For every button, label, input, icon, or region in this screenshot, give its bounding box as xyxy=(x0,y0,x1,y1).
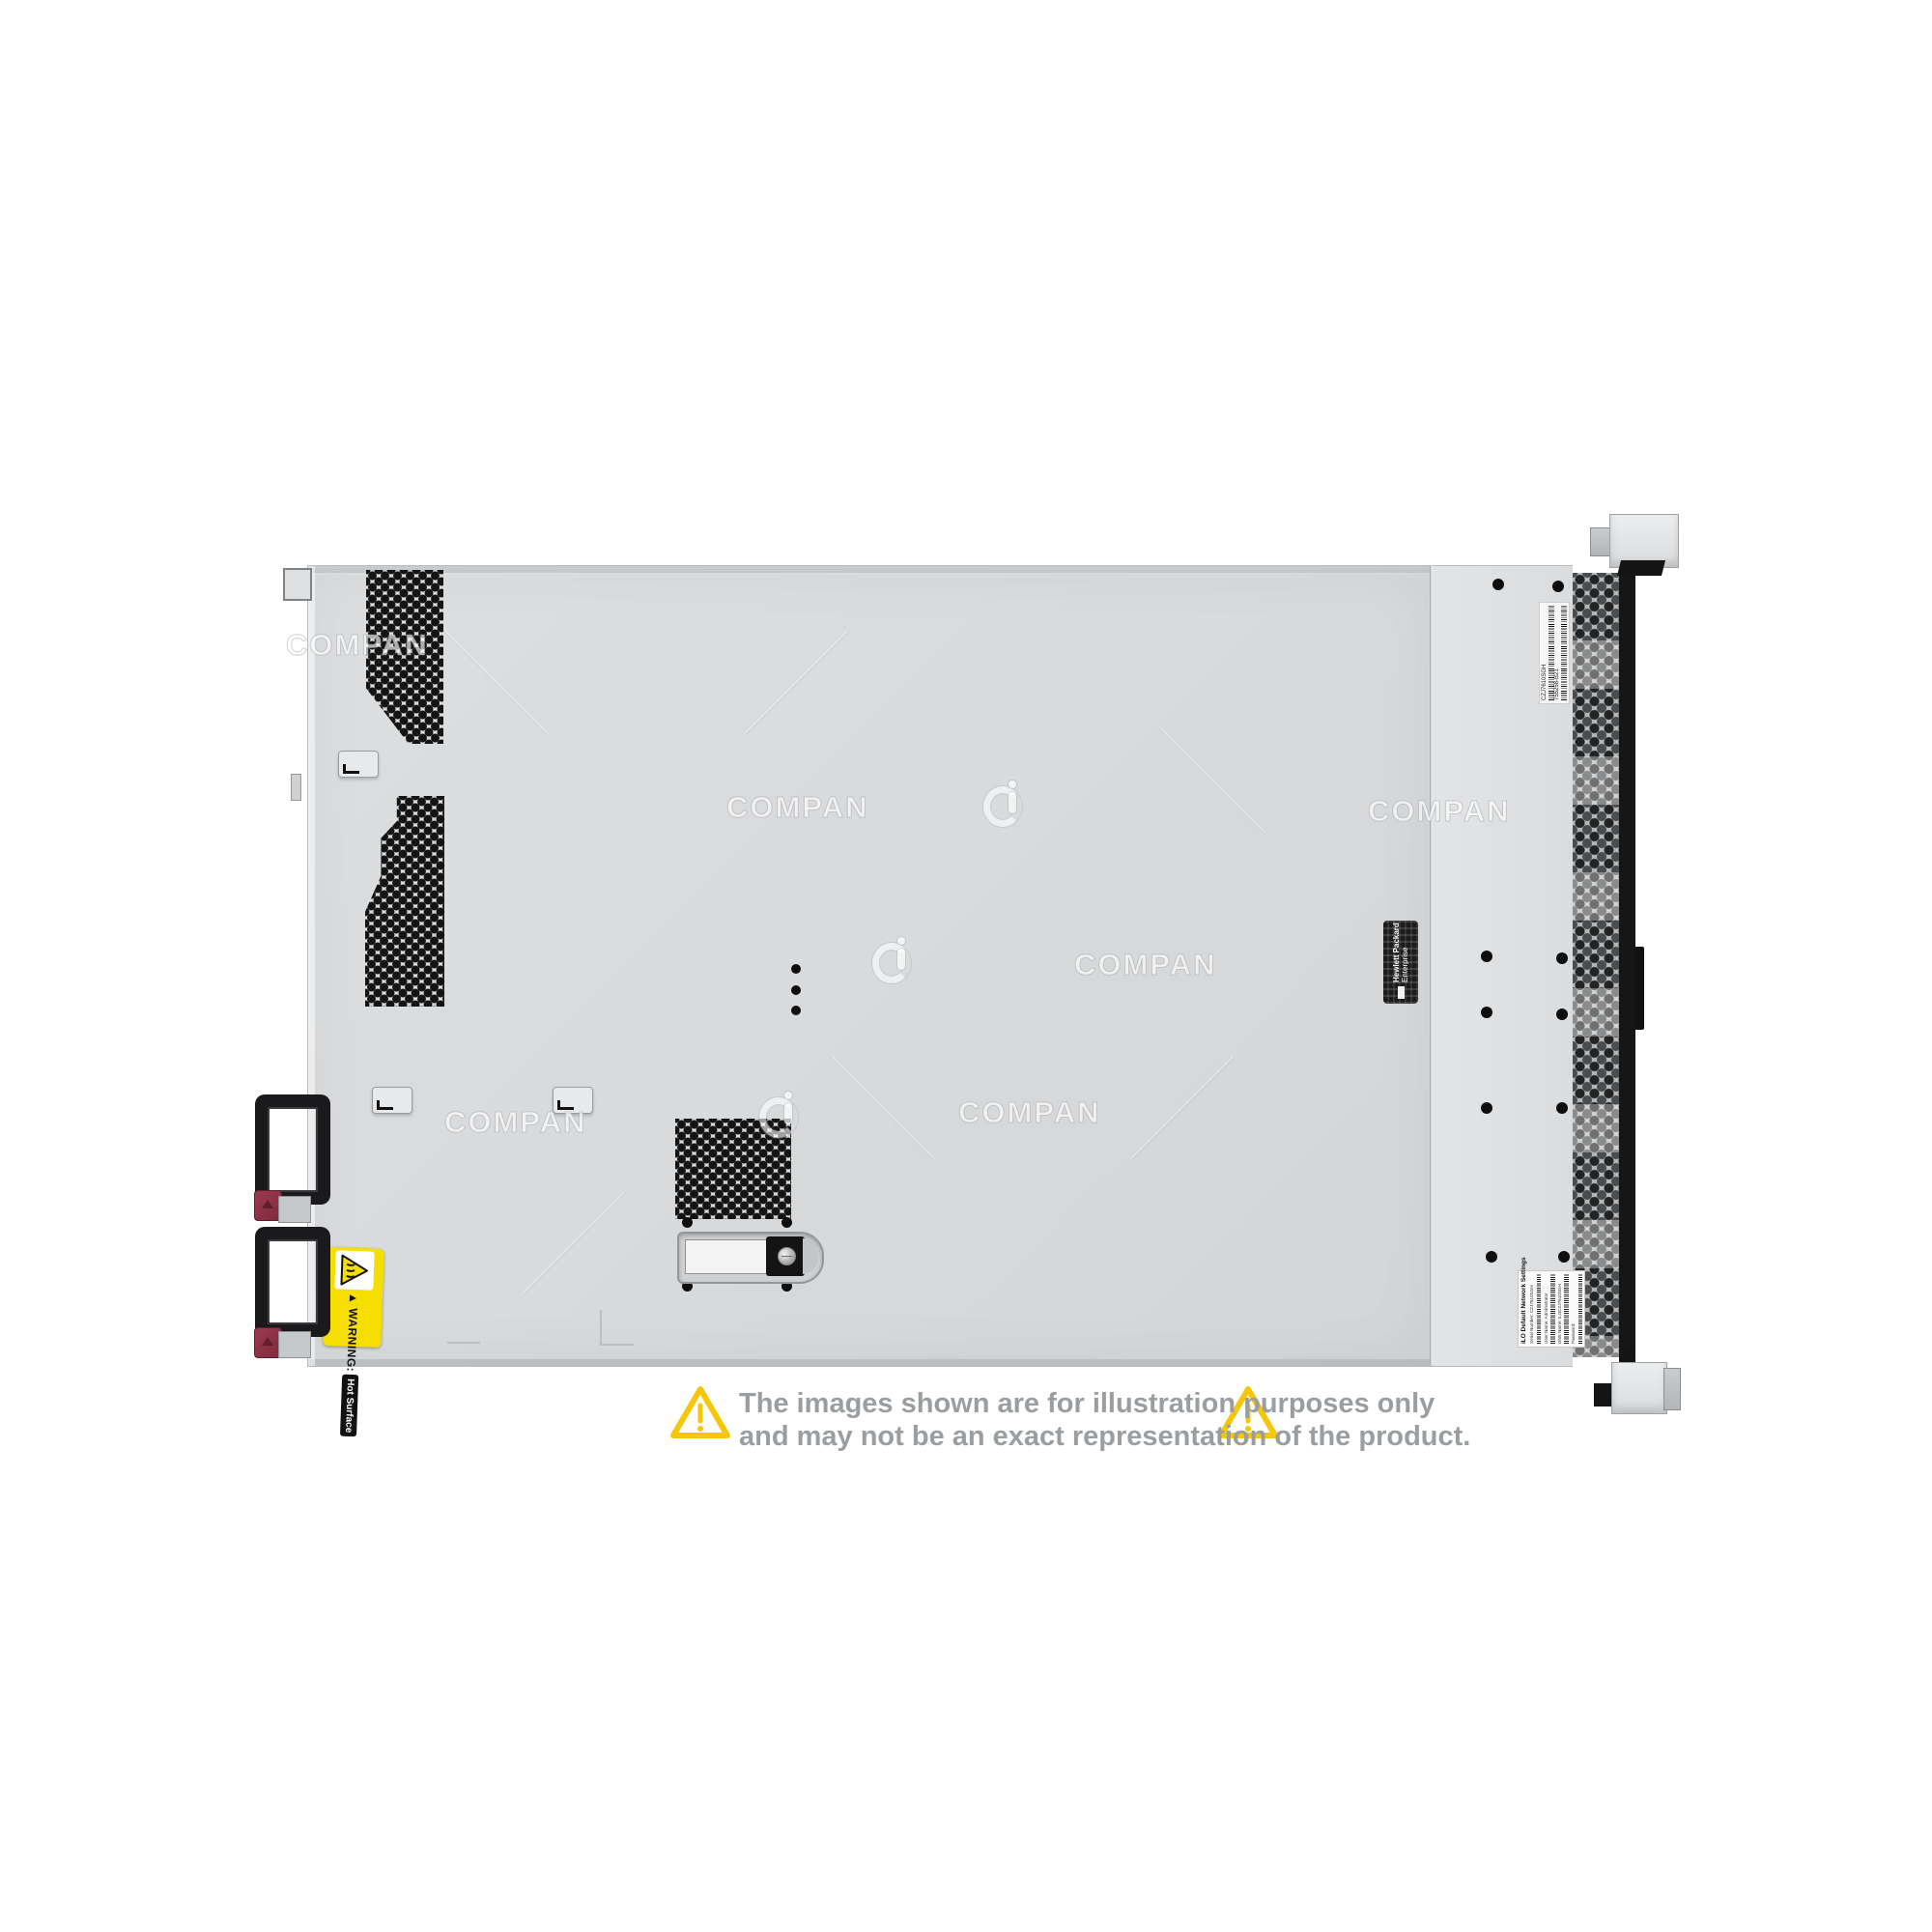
product-photo-canvas: Hewlett Packard Enterprise CZJ7610SGH 75… xyxy=(0,0,1932,1932)
front-plate-hole xyxy=(1486,1251,1497,1263)
part-number-text: 755258-B21 xyxy=(1554,606,1561,700)
watermark-diagonal-line xyxy=(445,631,549,734)
rack-ear-body xyxy=(1611,1362,1667,1414)
front-plate-hole xyxy=(1556,1102,1568,1114)
hpe-label-text: Hewlett Packard Enterprise xyxy=(1392,923,1409,982)
front-plate-hole xyxy=(1556,952,1568,964)
ilo-serial-line: Serial Number: CZJ7610SGH xyxy=(1529,1274,1534,1344)
front-plate-hole xyxy=(1481,1102,1492,1114)
cover-top-edge xyxy=(308,566,1434,573)
ilo-password-line: Password: xyxy=(1571,1274,1576,1344)
psu-connector-2 xyxy=(278,1331,311,1358)
disclaimer-line-1: The images shown are for illustration pu… xyxy=(739,1387,1210,1420)
cam-latch-plate xyxy=(685,1239,768,1274)
watermark-diagonal-line xyxy=(523,1191,626,1294)
cover-latch-plate xyxy=(372,1087,412,1114)
part-barcode xyxy=(1561,606,1567,700)
ilo-user-line: User Name: Administrator xyxy=(1544,1274,1548,1344)
front-plate-hole xyxy=(1552,581,1564,592)
rack-ear-top xyxy=(1590,512,1679,576)
watermark-text: COMPAN xyxy=(1368,794,1510,829)
watermark-diagonal-line xyxy=(1131,1056,1235,1159)
cover-pin-hole xyxy=(791,985,801,995)
watermark-logo-icon xyxy=(983,781,1016,821)
rack-ear-thumbscrew xyxy=(1663,1368,1681,1410)
hpe-brand-label: Hewlett Packard Enterprise xyxy=(1383,921,1418,1004)
latch-screw-hole xyxy=(781,1217,792,1228)
mid-vent-perforation xyxy=(365,796,444,1007)
cam-latch-handle-end xyxy=(803,1238,818,1274)
cover-slot-mark xyxy=(447,1342,480,1344)
ilo-dns-line: DNS Name: ILOCZJ7610SGH xyxy=(1557,1274,1562,1344)
watermark-diagonal-line xyxy=(1160,727,1264,831)
front-plate-hole xyxy=(1481,1007,1492,1018)
psu-handle-2 xyxy=(255,1227,330,1337)
warning-title: ▲ WARNING: xyxy=(344,1293,360,1373)
watermark-logo-icon xyxy=(759,1092,792,1132)
rack-ear-bracket xyxy=(1617,560,1665,576)
watermark-diagonal-line xyxy=(745,631,848,734)
watermark-text: COMPAN xyxy=(444,1105,586,1140)
psu-connector-1 xyxy=(278,1196,311,1223)
ilo-barcode xyxy=(1564,1274,1569,1344)
ilo-settings-label: iLO Default Network Settings Serial Numb… xyxy=(1518,1270,1585,1348)
cover-latch-plate xyxy=(338,751,379,778)
disclaimer-warning-icon-left xyxy=(669,1384,731,1440)
rear-edge-tab xyxy=(291,774,301,801)
front-bezel-strip xyxy=(1619,567,1635,1363)
rack-ear-connector xyxy=(1594,1383,1611,1406)
serial-barcode-label: CZJ7610SGH 755258-B21 xyxy=(1539,602,1570,704)
cover-pin-hole xyxy=(791,964,801,974)
watermark-text: COMPAN xyxy=(286,628,428,663)
cover-l-mark xyxy=(600,1344,634,1346)
server-chassis: Hewlett Packard Enterprise CZJ7610SGH 75… xyxy=(307,565,1639,1365)
serial-number-text: CZJ7610SGH xyxy=(1542,606,1548,700)
cam-latch-screw xyxy=(778,1247,796,1265)
front-plate-hole xyxy=(1558,1251,1570,1263)
watermark-diagonal-line xyxy=(832,1056,935,1159)
ilo-barcode xyxy=(1537,1274,1542,1344)
warning-subtitle: Hot Surface xyxy=(340,1375,358,1437)
watermark-text: COMPAN xyxy=(726,790,868,825)
front-plate-hole xyxy=(1492,579,1504,590)
watermark-logo-icon xyxy=(872,937,905,978)
watermark-text: COMPAN xyxy=(1074,948,1216,982)
ilo-barcode xyxy=(1578,1274,1583,1344)
latch-screw-hole xyxy=(682,1217,693,1228)
server-top-cover xyxy=(307,565,1435,1367)
watermark-text: COMPAN xyxy=(958,1095,1100,1130)
disclaimer-text-block: The images shown are for illustration pu… xyxy=(739,1387,1210,1453)
hpe-logo-rectangle xyxy=(1398,986,1405,999)
cover-cam-latch xyxy=(677,1232,824,1284)
front-plate-hole xyxy=(1481,951,1492,962)
front-pull-tab xyxy=(1634,947,1644,1030)
disclaimer-line-2: and may not be an exact representation o… xyxy=(739,1420,1210,1453)
rack-ear-bottom xyxy=(1590,1350,1683,1418)
ilo-label-title: iLO Default Network Settings xyxy=(1520,1274,1527,1344)
psu-handle-1 xyxy=(255,1094,330,1205)
front-plate-hole xyxy=(1556,1009,1568,1020)
hot-surface-icon-box xyxy=(334,1250,374,1290)
front-bay-vent-highlight xyxy=(1573,573,1619,1357)
cover-bottom-edge xyxy=(308,1359,1434,1366)
cover-l-mark xyxy=(600,1310,602,1346)
rear-edge-clip xyxy=(283,568,312,601)
ilo-barcode xyxy=(1550,1274,1555,1344)
cover-pin-hole xyxy=(791,1006,801,1015)
hot-surface-warning-label: ▲ WARNING: Hot Surface xyxy=(323,1247,384,1348)
hot-surface-icon xyxy=(339,1254,369,1288)
